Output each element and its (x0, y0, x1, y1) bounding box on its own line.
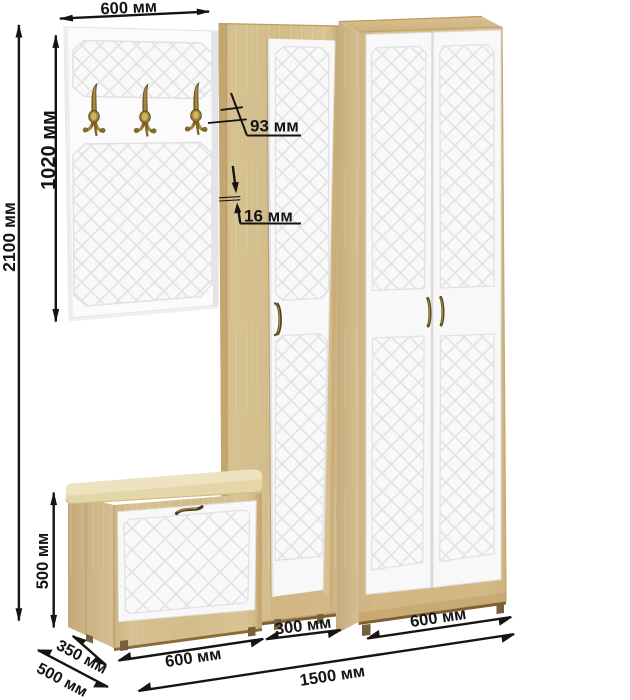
svg-text:600 мм: 600 мм (100, 0, 157, 18)
svg-text:500 мм: 500 мм (34, 533, 52, 590)
svg-text:93 мм: 93 мм (250, 117, 299, 136)
svg-text:2100 мм: 2100 мм (0, 202, 19, 272)
svg-text:1020 мм: 1020 мм (38, 110, 60, 190)
svg-text:16 мм: 16 мм (244, 207, 293, 226)
